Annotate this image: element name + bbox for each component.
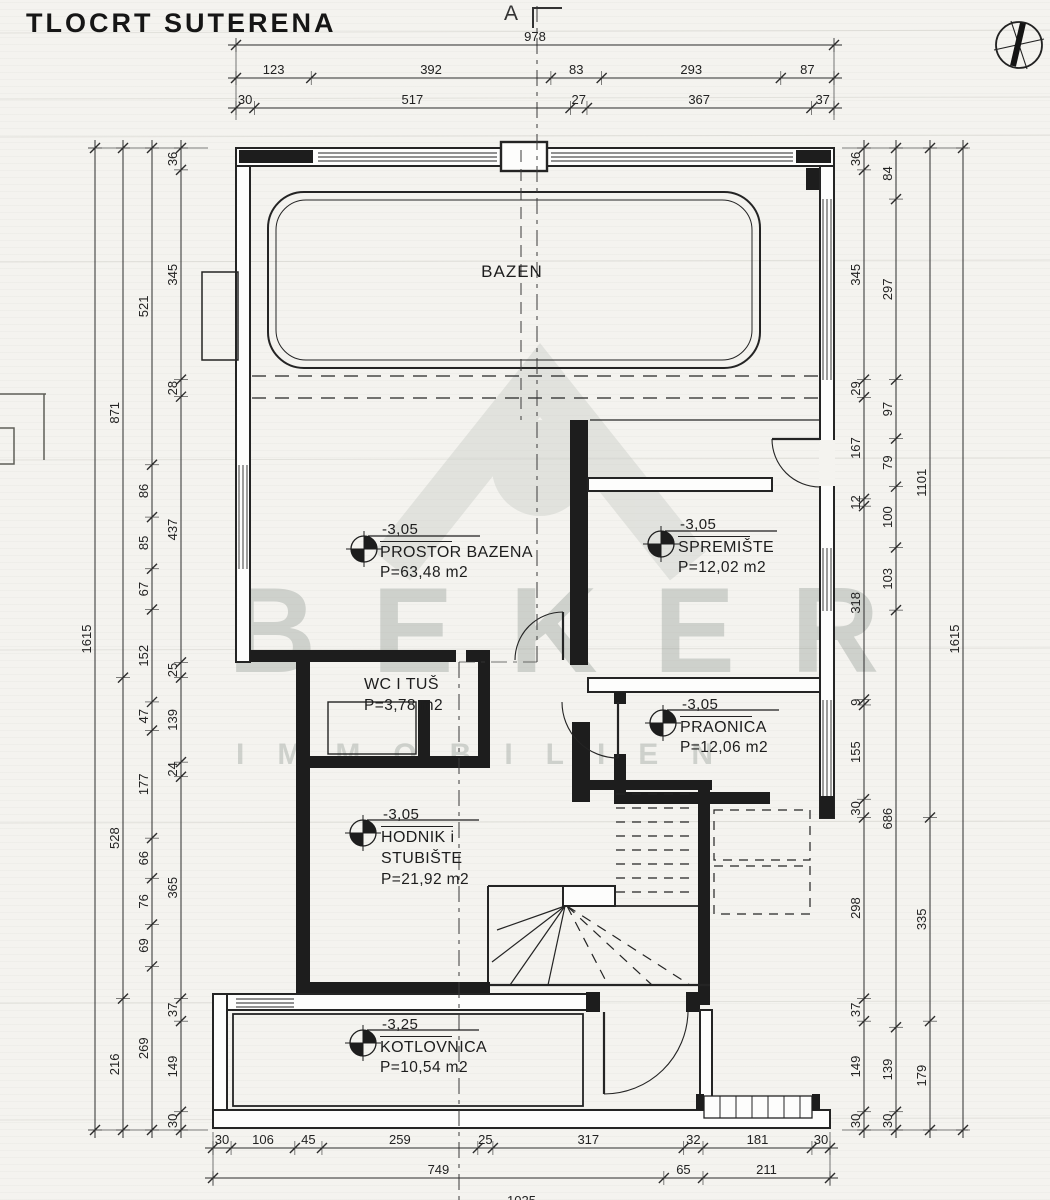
room-label-praonica: -3,05 PRAONICA P=12,06 m2 [680,695,768,758]
dim-label: 30 [814,1132,828,1147]
dim-label: 9 [848,699,863,706]
dim-chain-left-outer: 1615 [79,140,102,1138]
dim-chain-right-major: 1101335179 [914,140,937,1138]
floor-plan-canvas: 9781233928329387305172736737301064525925… [0,0,1050,1200]
level-value: -3,05 [680,695,752,717]
dim-label: 36 [165,152,180,166]
room-area: P=63,48 m2 [380,563,533,583]
dim-label: 1615 [79,625,94,654]
dim-chain-top-row3: 305172736737 [228,92,842,115]
dim-label: 27 [571,92,585,107]
dim-chain-right-outer: 1615 [947,140,970,1138]
dim-chain-bottom-row1: 3010645259253173218130 [205,1132,838,1155]
section-marker-label: A [504,2,518,26]
dim-label: 437 [165,519,180,541]
room-label-wc-i-tus: WC I TUŠ P=3,78 m2 [364,674,443,716]
plan-walls [202,142,835,1128]
dim-label: 871 [107,402,122,424]
margin-marks [0,394,46,464]
dim-label: 103 [880,568,895,590]
room-area: P=10,54 m2 [380,1058,487,1078]
room-area: P=3,78 m2 [364,696,443,716]
dim-label: 69 [136,938,151,952]
dim-label: 30 [165,1114,180,1128]
dim-label: 32 [686,1132,700,1147]
dim-label: 167 [848,437,863,459]
dim-label: 365 [165,877,180,899]
dim-label: 269 [136,1037,151,1059]
page-title: TLOCRT SUTERENA [26,8,337,39]
dim-chain-top-row2: 1233928329387 [228,62,842,85]
room-label-bazen: BAZEN [481,262,543,282]
dim-label: 86 [136,484,151,498]
dim-label: 152 [136,645,151,667]
dim-label: 25 [165,663,180,677]
dim-label: 66 [136,851,151,865]
dim-label: 47 [136,709,151,723]
dim-label: 181 [747,1132,769,1147]
dim-label: 179 [914,1065,929,1087]
dim-label: 28 [165,381,180,395]
dim-label: 24 [165,762,180,776]
dim-label: 749 [428,1162,450,1177]
dim-label: 83 [569,62,583,77]
level-value: -3,05 [380,520,452,542]
dim-label: 297 [880,279,895,301]
dim-label: 139 [880,1059,895,1081]
dim-label: 30 [238,92,252,107]
level-value: -3,05 [678,515,750,537]
room-name: SPREMIŠTE [678,537,774,559]
dim-label: 318 [848,592,863,614]
dim-label: 177 [136,773,151,795]
dim-label: 155 [848,741,863,763]
dim-label: 1025 [507,1193,536,1200]
dim-label: 29 [848,381,863,395]
room-label-hodnik: -3,05 HODNIK i STUBIŠTE P=21,92 m2 [381,805,469,890]
dim-label: 45 [301,1132,315,1147]
room-name-2: STUBIŠTE [381,848,469,870]
room-name: PRAONICA [680,717,768,739]
dim-label: 211 [756,1162,777,1177]
dim-chain-right-inner: 3634529167123189155302983714930 [848,140,871,1138]
dim-label: 97 [880,402,895,416]
dim-label: 1101 [914,469,929,497]
dim-label: 367 [688,92,710,107]
room-area: P=12,06 m2 [680,738,768,758]
dim-label: 36 [848,152,863,166]
dim-label: 65 [676,1162,690,1177]
dim-chain-left-inner: 363452843725139243653714930 [165,140,188,1138]
staircase [488,780,712,1005]
room-area: P=21,92 m2 [381,870,469,890]
dim-label: 37 [165,1003,180,1017]
dim-label: 25 [478,1132,492,1147]
dim-label: 85 [136,536,151,550]
level-value: -3,25 [380,1015,452,1037]
dim-label: 84 [880,166,895,180]
dim-label: 317 [577,1132,599,1147]
dim-label: 123 [263,62,285,77]
dim-label: 978 [524,29,546,44]
dim-chain-left-major: 871528216 [107,140,130,1138]
dim-chain-left-mid: 52186856715247177667669269 [136,140,159,1138]
dim-label: 335 [914,908,929,930]
dim-label: 12 [848,495,863,509]
room-area: P=12,02 m2 [678,558,774,578]
dim-label: 106 [252,1132,274,1147]
dim-label: 30 [848,1114,863,1128]
dim-label: 149 [165,1056,180,1078]
room-label-prostor-bazena: -3,05 PROSTOR BAZENA P=63,48 m2 [380,520,533,583]
room-name: KOTLOVNICA [380,1037,487,1059]
dim-label: 100 [880,506,895,528]
room-name: WC I TUŠ [364,674,443,696]
room-label-spremiste: -3,05 SPREMIŠTE P=12,02 m2 [678,515,774,578]
room-label-kotlovnica: -3,25 KOTLOVNICA P=10,54 m2 [380,1015,487,1078]
dim-label: 392 [420,62,442,77]
dim-chain-bottom-row2: 74965211 [205,1162,838,1185]
drawing-sheet: BEKER IMMOBILIEN TLOCRT SUTERENA A BAZEN… [0,0,1050,1200]
dim-label: 87 [800,62,814,77]
dim-label: 298 [848,897,863,919]
dim-label: 37 [848,1003,863,1017]
dim-label: 517 [402,92,424,107]
room-name: PROSTOR BAZENA [380,542,533,564]
dim-label: 149 [848,1056,863,1078]
dim-label: 30 [880,1114,895,1128]
room-name: HODNIK i [381,827,469,849]
dim-label: 345 [165,264,180,286]
north-arrow-icon [994,21,1044,69]
dim-label: 67 [136,582,151,596]
dim-chain-right-mid: 84297977910010368613930 [880,140,903,1138]
dim-chain-bottom-row3: 1025 [205,1193,838,1200]
dim-label: 528 [107,827,122,849]
dim-label: 79 [880,455,895,469]
level-value: -3,05 [381,805,453,827]
dim-label: 345 [848,264,863,286]
dim-label: 216 [107,1053,122,1075]
dim-label: 686 [880,808,895,830]
dim-label: 30 [848,801,863,815]
dim-label: 521 [136,296,151,318]
dim-label: 293 [680,62,702,77]
dim-label: 1615 [947,625,962,654]
dim-label: 37 [815,92,829,107]
dim-label: 30 [215,1132,229,1147]
dim-label: 139 [165,709,180,731]
dim-label: 76 [136,894,151,908]
dim-label: 259 [389,1132,411,1147]
